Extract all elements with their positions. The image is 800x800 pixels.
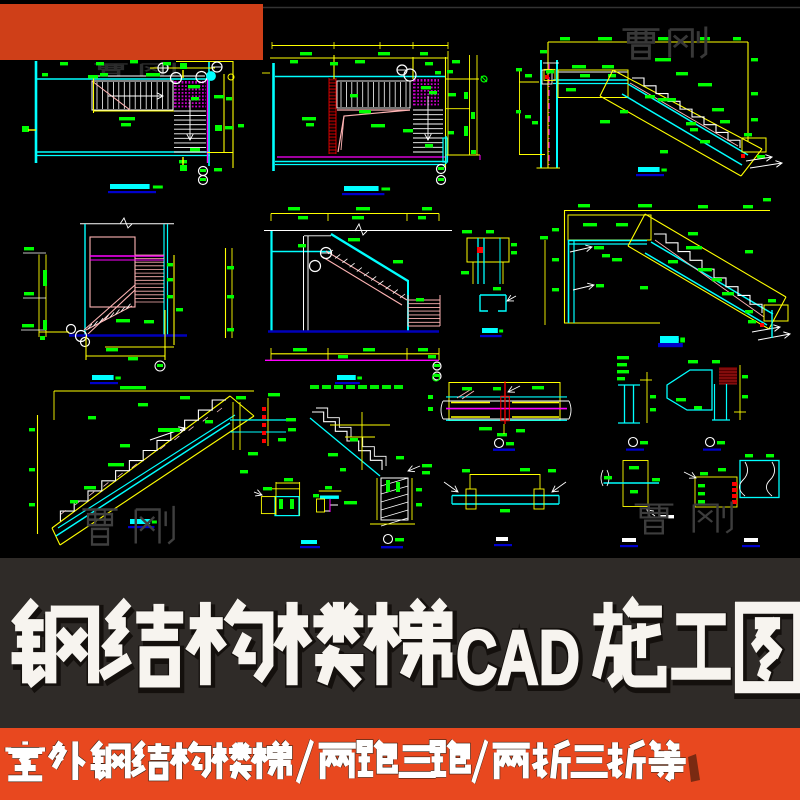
svg-text:CAD: CAD: [456, 615, 580, 701]
